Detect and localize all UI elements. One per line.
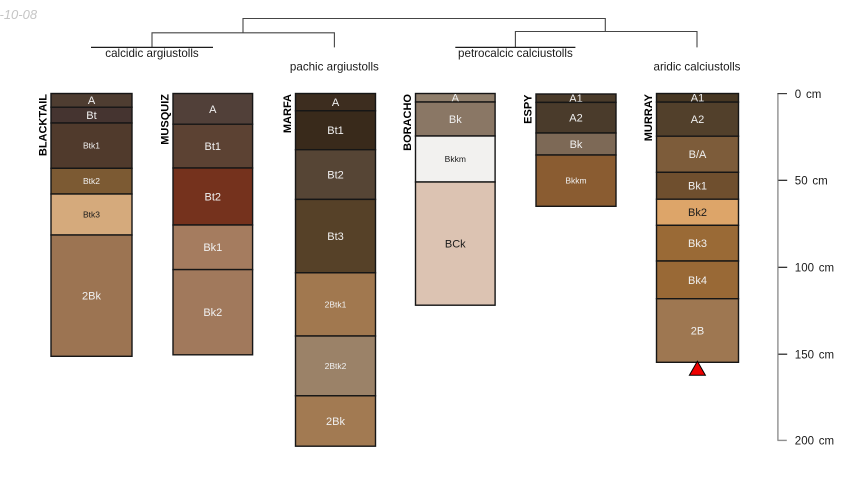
svg-text:100 cm: 100 cm [795,263,834,275]
svg-text:Bt2: Bt2 [205,191,222,203]
svg-text:Bk: Bk [570,139,583,151]
svg-text:petrocalcic calciustolls: petrocalcic calciustolls [458,47,573,60]
svg-text:2Bk: 2Bk [82,291,101,303]
svg-text:Bk1: Bk1 [203,242,222,254]
svg-text:A: A [88,95,96,107]
svg-text:BORACHO: BORACHO [402,94,414,151]
svg-text:A2: A2 [691,114,704,126]
svg-text:BCk: BCk [445,239,466,251]
svg-text:Bkkm: Bkkm [565,176,586,186]
svg-text:Bk4: Bk4 [688,275,707,287]
svg-text:2Btk2: 2Btk2 [325,361,347,371]
svg-text:Bt3: Bt3 [327,231,344,243]
svg-text:Bk2: Bk2 [203,307,222,319]
svg-text:Btk2: Btk2 [83,176,100,186]
svg-text:B/A: B/A [689,149,707,161]
svg-text:Bk: Bk [449,114,462,126]
svg-text:0 cm: 0 cm [795,89,822,101]
svg-text:2Bk: 2Bk [326,416,345,428]
svg-text:A: A [209,104,217,116]
svg-text:Bt: Bt [86,110,96,122]
svg-text:BLACKTAIL: BLACKTAIL [38,94,50,156]
svg-text:Btk3: Btk3 [83,210,100,220]
svg-text:Bt2: Bt2 [327,170,344,182]
svg-text:Bk2: Bk2 [688,207,707,219]
svg-text:pachic argiustolls: pachic argiustolls [290,61,379,74]
svg-text:Bk1: Bk1 [688,181,707,193]
svg-text:Bkkm: Bkkm [445,154,466,164]
svg-text:Bt1: Bt1 [205,141,222,153]
svg-text:MURRAY: MURRAY [643,93,655,141]
svg-text:aridic calciustolls: aridic calciustolls [654,61,741,74]
svg-text:Bk3: Bk3 [688,238,707,250]
svg-text:A2: A2 [569,113,582,125]
svg-text:2B: 2B [691,325,704,337]
svg-text:A: A [332,97,340,109]
svg-text:MUSQUIZ: MUSQUIZ [160,94,172,145]
svg-text:50 cm: 50 cm [795,176,828,188]
svg-text:-10-08: -10-08 [0,7,38,22]
svg-text:200 cm: 200 cm [795,436,834,448]
svg-text:MARFA: MARFA [282,94,294,133]
svg-text:150 cm: 150 cm [795,349,834,361]
svg-text:Bt1: Bt1 [327,125,344,137]
svg-text:2Btk1: 2Btk1 [325,299,347,309]
svg-text:Btk1: Btk1 [83,141,100,151]
svg-text:calcidic argiustolls: calcidic argiustolls [105,47,199,60]
svg-text:ESPY: ESPY [523,94,535,124]
